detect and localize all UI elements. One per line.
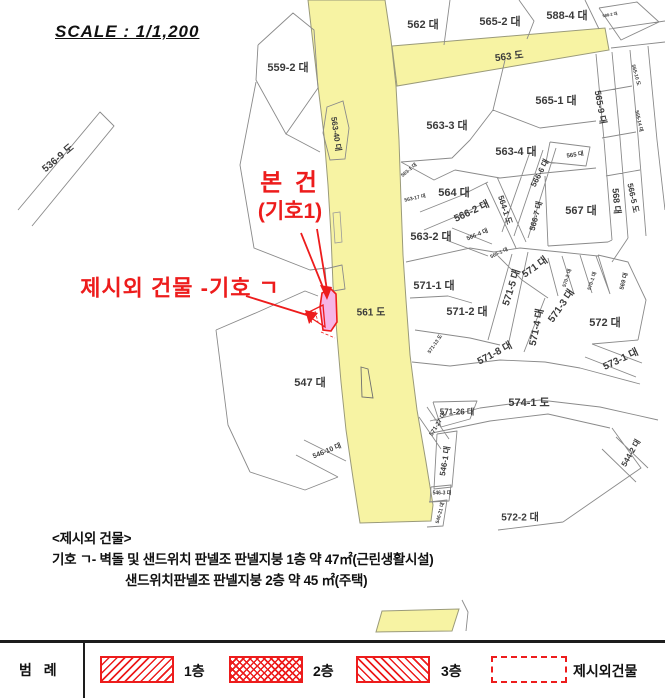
notes-block: <제시외 건물> 기호 ㄱ- 벽돌 및 샌드위치 판넬조 판넬지붕 1층 약 4… — [52, 528, 433, 591]
cadastral-map-sheet: 562 대565-2 대588-4 대588-2 대563 도559-2 대53… — [0, 0, 665, 700]
subject-arrow-line — [301, 229, 327, 290]
legend-swatch-extra-building — [491, 656, 567, 683]
extra-building-annotation: 제시외 건물 -기호 ㄱ — [80, 276, 280, 299]
legend-label-extra-building: 제시외건물 — [573, 661, 637, 681]
legend-divider — [0, 640, 665, 643]
legend-swatch-floor2 — [229, 656, 303, 683]
cadastral-map-drawing — [0, 0, 665, 700]
legend-title: 범 례 — [19, 660, 61, 680]
notes-line2: 샌드위치판넬조 판넬지붕 2층 약 45 ㎡(주택) — [52, 570, 433, 591]
subject-annotation-line1: 본 건 — [260, 170, 320, 195]
notes-title: <제시외 건물> — [52, 528, 433, 549]
legend-swatch-floor1 — [100, 656, 174, 683]
legend-label-floor3: 3층 — [441, 661, 462, 681]
scale-label: SCALE : 1/1,200 — [55, 22, 199, 42]
legend-label-floor2: 2층 — [313, 661, 334, 681]
legend-swatch-floor3 — [356, 656, 430, 683]
notes-line1: 기호 ㄱ- 벽돌 및 샌드위치 판넬조 판넬지붕 1층 약 47㎡(근린생활시설… — [52, 549, 433, 570]
legend-vertical-divider — [83, 640, 85, 698]
subject-annotation-line2: (기호1) — [258, 201, 322, 223]
road-segment-bottom — [376, 609, 459, 632]
legend-label-floor1: 1층 — [184, 661, 205, 681]
